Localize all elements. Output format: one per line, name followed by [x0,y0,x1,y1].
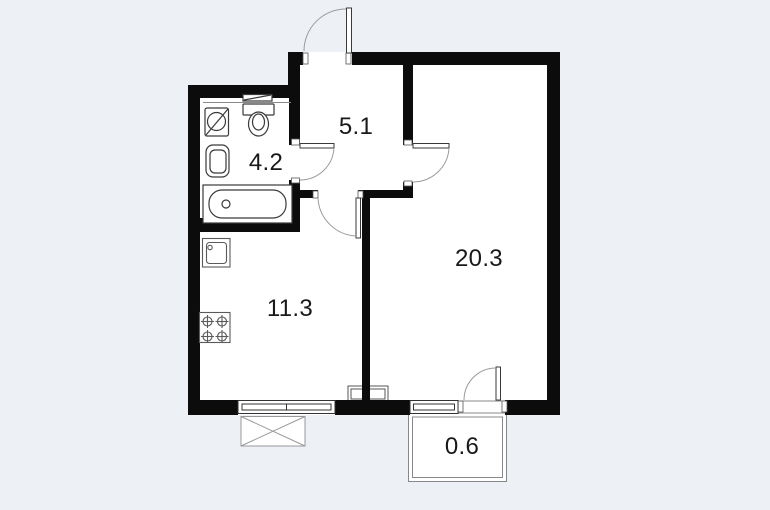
room-label-kitchen: 11.3 [267,295,313,322]
shelf-icon [243,95,272,102]
kitchen-window [238,401,335,414]
floor-plan-svg: 4.2 5.1 11.3 20.3 0.6 [0,0,770,510]
room-label-hallway: 5.1 [339,113,373,140]
washing-machine-icon [205,108,229,136]
entrance-door [304,8,352,53]
sink-icon [206,145,229,177]
room-label-balcony: 0.6 [445,433,479,460]
ac-basket-icon [241,417,305,447]
room-label-bathroom: 4.2 [249,149,283,176]
floor-plan: 4.2 5.1 11.3 20.3 0.6 [0,0,770,510]
kitchen-sink-icon [203,239,231,268]
living-room-window [410,401,458,414]
bathtub-icon [203,185,292,223]
room-label-living-room: 20.3 [455,245,503,272]
